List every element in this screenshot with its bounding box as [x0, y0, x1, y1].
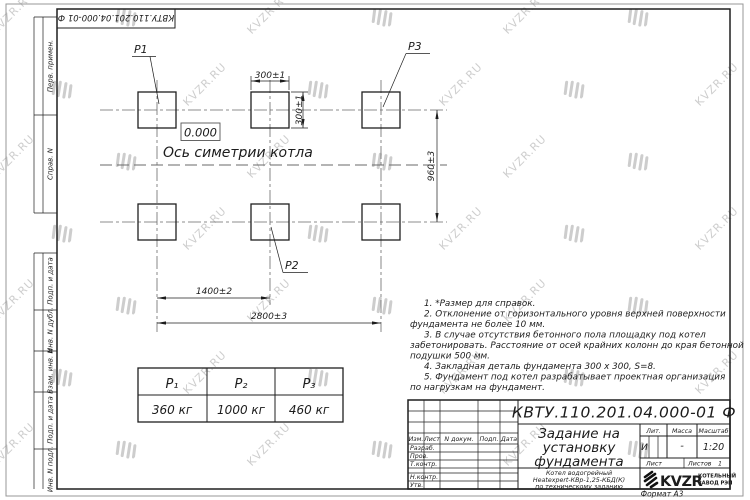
kvzr-logo-text: KVZR: [660, 474, 702, 490]
centerlines: [100, 80, 447, 332]
table-cell: 460 кг: [289, 403, 330, 417]
leader-p3: P3: [383, 40, 430, 107]
sheets-label: Листов: [687, 461, 712, 468]
outer-border: [6, 4, 743, 496]
note-line: по нагрузкам на фундамент.: [410, 383, 545, 393]
row-razrab: Разраб.: [410, 444, 435, 452]
dim-mid-span: 1400±2: [157, 287, 270, 300]
note-line: 2. Отклонение от горизонтального уровня …: [424, 310, 726, 320]
table-header: Р₃: [302, 377, 315, 392]
mass-value: -: [680, 441, 684, 452]
table-header: Р₂: [234, 377, 247, 392]
kvzr-logo-icon: [645, 472, 657, 487]
note-line: 1. *Размер для справок.: [424, 299, 535, 309]
row-nkontr: Н.контр.: [410, 474, 438, 481]
foundation-pads: [138, 92, 400, 240]
elevation-value: 0.000: [184, 126, 217, 140]
stamp-label: Инв. N подл.: [47, 446, 55, 492]
row-prov: Пров.: [410, 453, 428, 460]
table-cell: 360 кг: [152, 403, 193, 417]
scale-label: Масштаб: [699, 427, 729, 435]
kvzr-logo-line1: КОТЕЛЬНЫЙ: [698, 472, 736, 480]
dim-text: 1400±2: [196, 287, 232, 297]
format-label: Формат А3: [641, 490, 684, 499]
doc-subtitle-line: Котел водогрейный: [546, 470, 612, 477]
axis-of-symmetry-label: Ось симетрии котла: [163, 145, 313, 161]
dim-text: 960±3: [427, 151, 437, 182]
label-p2: P2: [285, 259, 299, 272]
stamp-label: Инв. N дубл.: [47, 307, 55, 353]
sheets-value: 1: [718, 461, 722, 468]
note-line: 5. Фундамент под котел разрабатывает про…: [424, 373, 726, 383]
col-izm: Изм.: [409, 436, 424, 443]
dim-text: 300±1: [255, 71, 285, 81]
dim-text: 300±1: [295, 95, 305, 125]
leader-p1: P1: [132, 43, 159, 104]
doc-number: КВТУ.110.201.04.000-01 Ф: [512, 404, 736, 422]
note-line: фундамента не более 10 мм.: [410, 320, 545, 330]
doc-subtitle-line: по техническому заданию: [535, 484, 623, 491]
dim-vertical-span: 960±3: [427, 110, 439, 222]
stamp-label: Подп. и дата: [47, 396, 55, 444]
stamp-label: Взам. инв. N: [47, 347, 55, 393]
sheet-label: Лист: [645, 461, 662, 468]
label-p3: P3: [408, 40, 422, 53]
note-line: 3. В случае отсутствия бетонного пола пл…: [424, 331, 706, 341]
scale-value: 1:20: [703, 442, 724, 453]
note-line: подушки 500 мм.: [410, 352, 490, 362]
load-table: Р₁ Р₂ Р₃ 360 кг 1000 кг 460 кг: [138, 368, 343, 422]
table-header: Р₁: [165, 377, 178, 392]
drawing-sheet: KVZR.RUKVZR.RUKVZR.RUKVZR.RUKVZR.RUKVZR.…: [0, 0, 750, 500]
left-stamp-labels: Перв. примен. Справ. N Подп. и дата Инв.…: [47, 40, 55, 492]
label-p1: P1: [134, 43, 148, 56]
stamp-label: Подп. и дата: [47, 257, 55, 305]
col-data: Дата: [500, 436, 517, 443]
elevation-mark: 0.000: [181, 123, 220, 141]
col-podp: Подп.: [479, 436, 498, 443]
note-line: 4. Закладная деталь фундамента 300 х 300…: [424, 362, 656, 372]
top-doc-number: КВТУ.110.201.04.000-01 Ф: [58, 12, 174, 22]
stamp-label: Справ. N: [47, 147, 55, 180]
top-doc-stamp: КВТУ.110.201.04.000-01 Ф: [57, 9, 175, 28]
kvzr-logo: KVZR КОТЕЛЬНЫЙ ЗАВОД РЭП: [645, 472, 736, 491]
technical-drawing-canvas: КВТУ.110.201.04.000-01 Ф Перв. примен. С…: [0, 0, 750, 500]
mass-label: Масса: [672, 428, 692, 435]
title-block: КВТУ.110.201.04.000-01 Ф Задание на уста…: [408, 400, 736, 491]
dim-text: 2800±3: [251, 312, 287, 322]
doc-title-line: фундамента: [534, 454, 623, 470]
kvzr-logo-line2: ЗАВОД РЭП: [698, 481, 732, 487]
col-list: Лист: [423, 436, 440, 443]
dim-full-span: 2800±3: [157, 312, 381, 325]
stamp-label: Перв. примен.: [47, 40, 55, 93]
lit-label: Лит.: [645, 428, 661, 435]
col-ndocum: N докум.: [444, 436, 473, 443]
note-line: забетонировать. Расстояние от осей крайн…: [410, 341, 744, 351]
row-utv: Утв.: [410, 482, 423, 489]
row-tkontr: Т.контр.: [410, 461, 437, 468]
lit-value: И: [641, 443, 648, 453]
table-cell: 1000 кг: [217, 403, 266, 417]
notes-block: 1. *Размер для справок. 2. Отклонение от…: [410, 299, 744, 393]
